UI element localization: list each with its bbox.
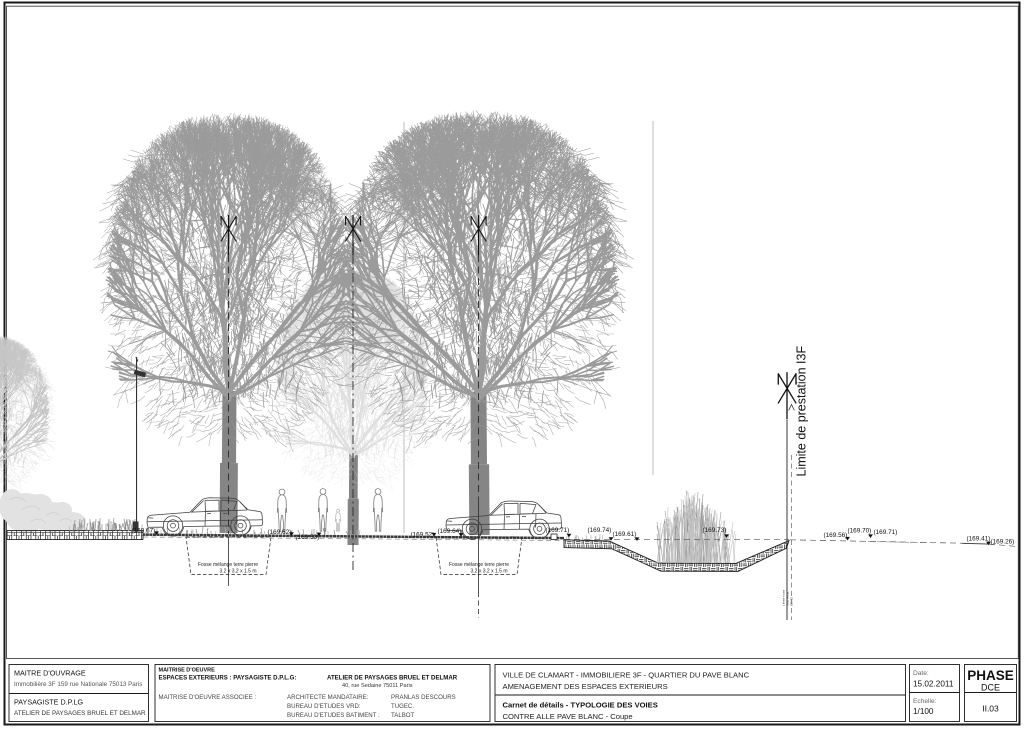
svg-text:CONTRE ALLE PAVE BLANC - Coupe: CONTRE ALLE PAVE BLANC - Coupe xyxy=(503,712,633,721)
svg-text:TUGEC.: TUGEC. xyxy=(391,703,414,710)
svg-text:(169.67): (169.67) xyxy=(132,528,156,535)
svg-text:(169.50): (169.50) xyxy=(296,534,320,541)
svg-text:(169.56): (169.56) xyxy=(824,532,848,539)
svg-text:VILLE DE CLAMART - IMMOBILIERE: VILLE DE CLAMART - IMMOBILIERE 3F - QUAR… xyxy=(503,671,750,680)
svg-text:Fosse mélange terre pierre: Fosse mélange terre pierre xyxy=(449,562,509,568)
svg-text:(169.62): (169.62) xyxy=(268,529,292,536)
svg-text:Limite de prestation I3F: Limite de prestation I3F xyxy=(795,346,809,477)
svg-text:ATELIER DE PAYSAGES BRUEL ET D: ATELIER DE PAYSAGES BRUEL ET DELMAR xyxy=(327,675,458,682)
svg-text:(169.74): (169.74) xyxy=(588,527,612,534)
svg-text:Echelle:: Echelle: xyxy=(913,698,937,705)
svg-text:ATELIER DE PAYSAGES BRUEL ET D: ATELIER DE PAYSAGES BRUEL ET DELMAR xyxy=(14,710,146,717)
svg-text:(169.64): (169.64) xyxy=(438,528,462,535)
svg-text:BUREAU D'ETUDES VRD:: BUREAU D'ETUDES VRD: xyxy=(287,703,361,710)
svg-text:MAITRISE D'OEUVRE: MAITRISE D'OEUVRE xyxy=(159,668,216,674)
svg-text:15.02.2011: 15.02.2011 xyxy=(913,680,954,689)
svg-text:PHASE: PHASE xyxy=(967,668,1014,683)
svg-text:3.2 x 3.2 x 1.5 m: 3.2 x 3.2 x 1.5 m xyxy=(220,569,257,575)
svg-text:DCE: DCE xyxy=(981,683,1000,693)
svg-text:Carnet de détails - TYPOLOGIE: Carnet de détails - TYPOLOGIE DES VOIES xyxy=(503,701,658,710)
svg-text:(169.61): (169.61) xyxy=(613,531,637,538)
svg-text:Date:: Date: xyxy=(913,670,929,677)
svg-text:PAYSAGISTE D.P.LG: PAYSAGISTE D.P.LG xyxy=(14,698,84,707)
svg-text:AMENAGEMENT DES ESPACES EXTERI: AMENAGEMENT DES ESPACES EXTERIEURS xyxy=(503,682,668,691)
svg-text:Immobilière 3F 159 rue Nationa: Immobilière 3F 159 rue Nationale 75013 P… xyxy=(14,681,142,688)
svg-text:MAITRISE D'OEUVRE ASSOCIEE :: MAITRISE D'OEUVRE ASSOCIEE : xyxy=(159,694,257,701)
svg-text:(169.70): (169.70) xyxy=(848,528,872,535)
svg-text:MAITRE D'OUVRAGE: MAITRE D'OUVRAGE xyxy=(14,669,86,678)
svg-text:BUREAU D'ETUDES BATIMENT :: BUREAU D'ETUDES BATIMENT : xyxy=(287,712,380,719)
svg-text:Fosse mélange terre pierre: Fosse mélange terre pierre xyxy=(198,562,258,568)
svg-text:TALBOT: TALBOT xyxy=(391,712,415,719)
svg-text:3.2 x 3.2 x 1.5 m: 3.2 x 3.2 x 1.5 m xyxy=(471,569,508,575)
svg-text:PRANLAS DESCOURS: PRANLAS DESCOURS xyxy=(391,694,456,701)
svg-text:ESPACES EXTERIEURS : PAYSAGIST: ESPACES EXTERIEURS : PAYSAGISTE D.P.L.G: xyxy=(159,675,297,682)
svg-text:(169.71): (169.71) xyxy=(546,527,570,534)
svg-text:40, rue Sedaine 75011 Paris: 40, rue Sedaine 75011 Paris xyxy=(342,683,413,689)
svg-text:1/100: 1/100 xyxy=(913,707,934,716)
svg-text:II.03: II.03 xyxy=(982,704,999,714)
svg-text:CG 92: CG 92 xyxy=(790,597,794,606)
svg-text:(169.71): (169.71) xyxy=(874,529,898,536)
svg-text:(169.41): (169.41) xyxy=(967,536,991,543)
svg-text:ARCHITECTE MANDATAIRE:: ARCHITECTE MANDATAIRE: xyxy=(287,694,369,701)
svg-text:(169.26): (169.26) xyxy=(991,539,1015,546)
svg-text:(169.52): (169.52) xyxy=(411,532,435,539)
svg-text:(169.73): (169.73) xyxy=(703,527,727,534)
